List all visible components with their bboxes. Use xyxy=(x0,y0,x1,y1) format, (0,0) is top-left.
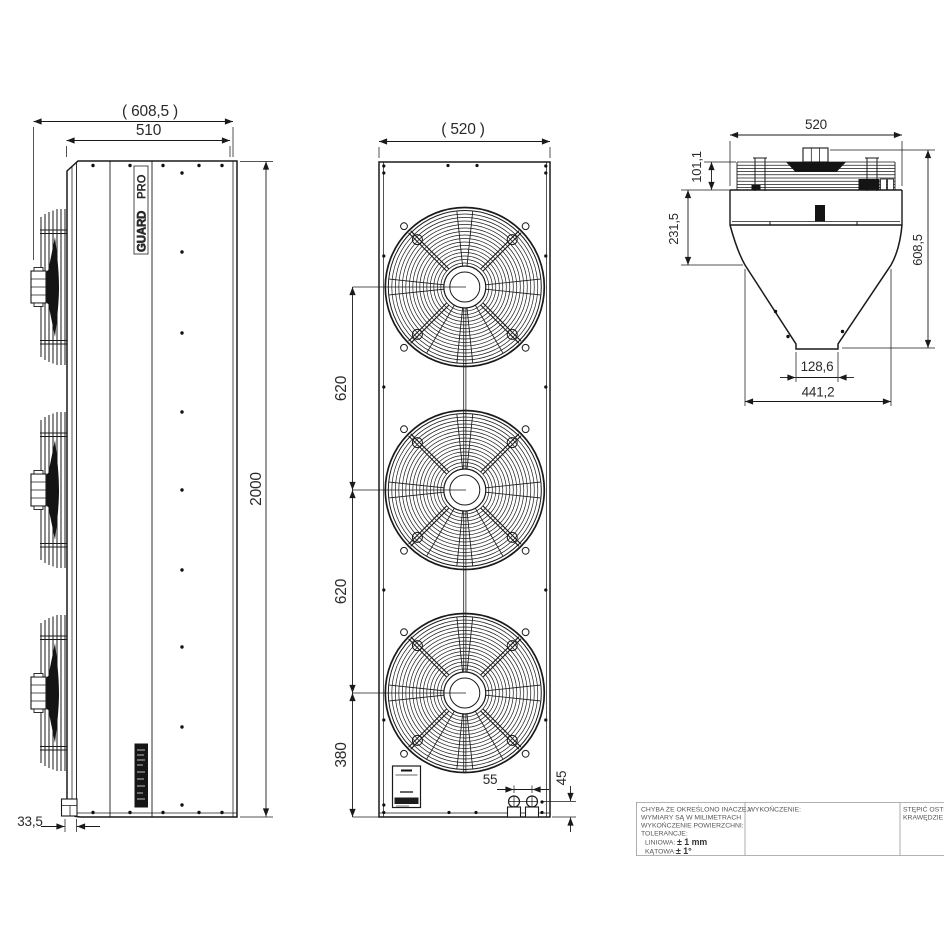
cable-glands xyxy=(508,796,539,817)
dim-side-grille-offset: 33,5 xyxy=(17,814,42,829)
note-line-1: CHYBA ŻE OKREŚLONO INACZEJ: xyxy=(641,805,752,814)
tolerance-angular-value: ± 1° xyxy=(676,846,692,856)
dim-fan-pitch-upper: 620 xyxy=(333,375,350,401)
dim-gland-offset: 45 xyxy=(554,771,569,786)
dim-top-grille-height: 101,1 xyxy=(689,151,704,183)
dim-top-width: 520 xyxy=(805,117,827,132)
edge-note-line-1: STĘPIĆ OSTRE xyxy=(903,805,944,814)
note-line-3: WYKOŃCZENIE POWIERZCHNI: xyxy=(641,821,744,830)
logo-pro: PRO xyxy=(137,174,149,199)
edge-note-line-2: KRAWĘDZIE xyxy=(903,815,944,822)
rating-label xyxy=(135,744,149,808)
side-fan-1 xyxy=(31,209,67,365)
drawing-sheet: PRO GUARD ( xyxy=(0,0,944,944)
product-label xyxy=(393,766,421,808)
technical-drawing: PRO GUARD ( xyxy=(0,0,944,944)
side-fan-2 xyxy=(31,412,67,568)
finish-label: WYKOŃCZENIE: xyxy=(749,805,802,814)
title-block: CHYBA ŻE OKREŚLONO INACZEJ: WYMIARY SĄ W… xyxy=(636,803,944,857)
tolerance-angular-label: KĄTOWA: xyxy=(645,849,676,856)
dim-fan-pitch-lower: 620 xyxy=(333,578,350,604)
corner-bracket xyxy=(62,799,78,816)
dim-top-overall-height: 608,5 xyxy=(910,234,925,266)
brand-logo: PRO GUARD xyxy=(134,166,149,254)
dim-gland-spacing: 55 xyxy=(483,772,498,787)
dim-side-body-depth: 510 xyxy=(136,122,162,139)
dim-top-plenum-height: 231,5 xyxy=(666,213,681,245)
dim-side-height: 2000 xyxy=(248,472,265,506)
side-view: PRO GUARD ( xyxy=(17,103,273,832)
top-view: 520 101,1 231,5 608,5 128,6 441,2 xyxy=(666,117,935,406)
top-funnel xyxy=(730,225,902,349)
dim-side-overall-depth: ( 608,5 ) xyxy=(122,103,178,120)
dim-top-outlet-width: 128,6 xyxy=(801,359,834,374)
dim-front-width: ( 520 ) xyxy=(441,121,484,138)
tolerance-linear-label: LINIOWA: xyxy=(645,840,675,847)
logo-guard: GUARD xyxy=(137,211,149,252)
front-view: ( 520 ) 620 620 380 55 45 xyxy=(333,121,576,832)
note-line-2: WYMIARY SĄ W MILIMETRACH xyxy=(641,815,741,822)
side-fan-3 xyxy=(31,615,67,771)
top-dimensions: 520 101,1 231,5 608,5 128,6 441,2 xyxy=(666,117,935,406)
screw-dots-side xyxy=(91,164,223,814)
dim-fan-bottom-offset: 380 xyxy=(333,742,350,768)
dim-top-funnel-width: 441,2 xyxy=(802,385,835,400)
